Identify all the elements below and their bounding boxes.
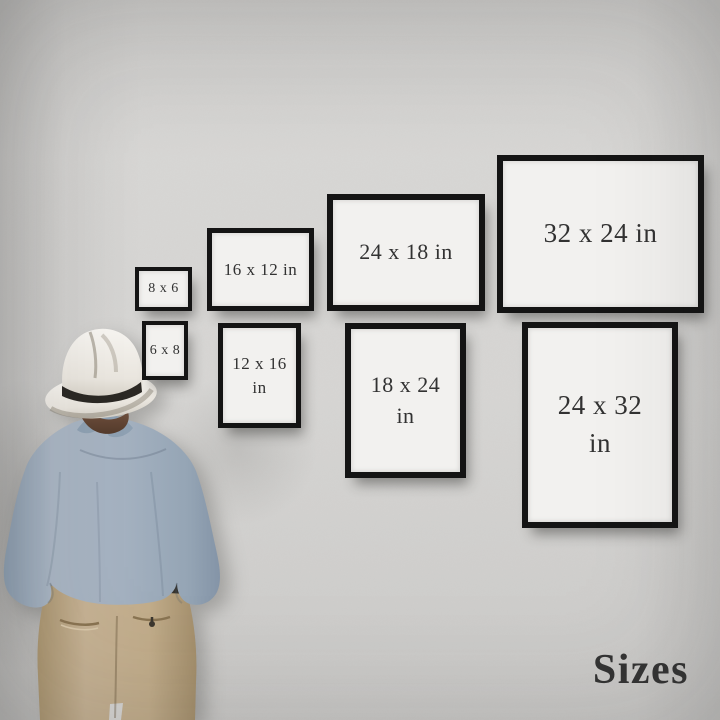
size-label: 12 x 16	[232, 352, 287, 376]
size-frame-12x16: 12 x 16 in	[218, 323, 301, 428]
size-frame-8x6: 8 x 6	[135, 267, 192, 311]
size-label: 16 x 12 in	[224, 258, 297, 282]
size-label-unit: in	[396, 401, 414, 432]
scene: 8 x 6 6 x 8 16 x 12 in 12 x 16 in 24 x 1…	[0, 0, 720, 720]
size-label-unit: in	[252, 376, 266, 400]
man-figure	[0, 320, 230, 720]
size-frame-18x24: 18 x 24 in	[345, 323, 466, 478]
size-label: 24 x 32	[558, 387, 643, 425]
size-label: 6 x 8	[150, 341, 181, 361]
pocket-button	[149, 621, 155, 627]
size-label: 8 x 6	[148, 279, 179, 299]
size-frame-32x24: 32 x 24 in	[497, 155, 704, 313]
khaki-pants	[37, 586, 196, 720]
size-frame-24x32: 24 x 32 in	[522, 322, 678, 528]
size-label-unit: in	[589, 425, 611, 463]
size-label: 18 x 24	[371, 370, 441, 401]
size-frame-6x8: 6 x 8	[142, 321, 188, 380]
size-label: 32 x 24 in	[544, 215, 658, 253]
size-frame-24x18: 24 x 18 in	[327, 194, 485, 311]
size-frame-16x12: 16 x 12 in	[207, 228, 314, 311]
sizes-title: Sizes	[593, 646, 689, 694]
blue-shirt	[4, 417, 220, 608]
size-label: 24 x 18 in	[359, 237, 453, 268]
